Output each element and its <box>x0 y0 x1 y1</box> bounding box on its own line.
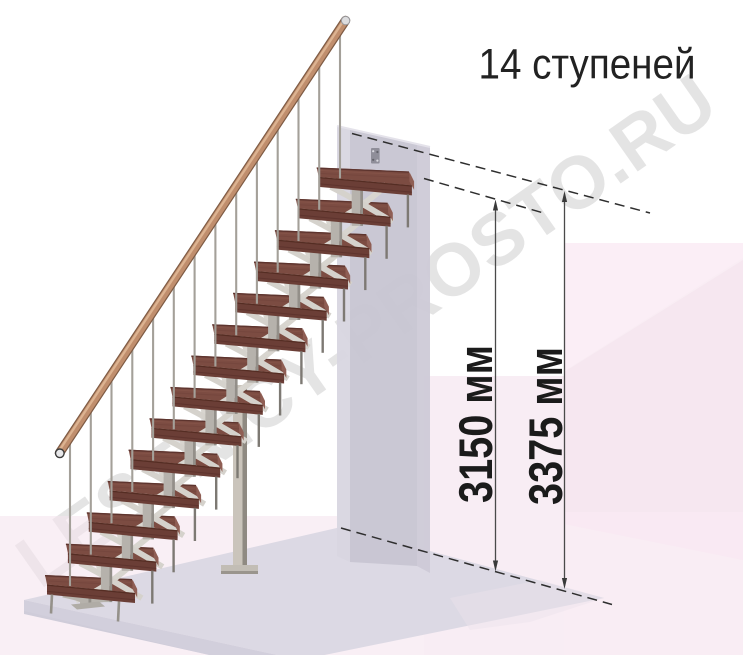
svg-text:3150 мм: 3150 мм <box>449 345 502 503</box>
svg-text:14 ступеней: 14 ступеней <box>479 41 696 89</box>
svg-text:3375 мм: 3375 мм <box>519 347 572 505</box>
